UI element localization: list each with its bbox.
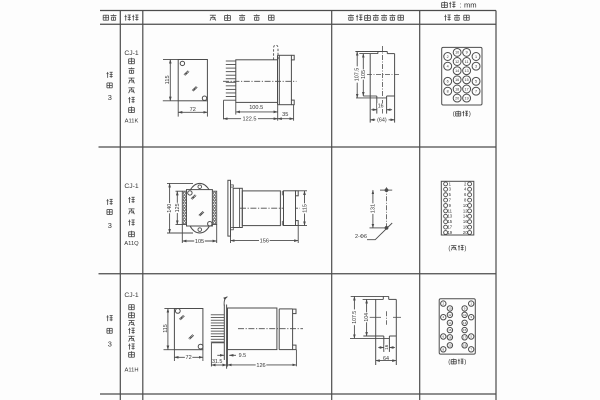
svg-text:18: 18: [448, 335, 452, 339]
svg-text:A11H: A11H: [124, 367, 138, 373]
svg-text:12: 12: [455, 60, 459, 64]
svg-text:mm: mm: [464, 1, 477, 10]
svg-text:115: 115: [165, 75, 171, 84]
svg-text:107.5: 107.5: [352, 311, 358, 324]
svg-text:15: 15: [463, 328, 467, 332]
svg-text:35: 35: [282, 112, 288, 118]
svg-text:10: 10: [448, 306, 452, 310]
svg-text:11: 11: [465, 60, 469, 64]
svg-text:19: 19: [465, 96, 469, 100]
svg-text:7: 7: [475, 89, 477, 93]
svg-text:14: 14: [455, 69, 459, 73]
svg-text:14: 14: [463, 214, 468, 219]
svg-text:1: 1: [475, 55, 477, 59]
svg-text:105: 105: [195, 239, 204, 245]
svg-text:16: 16: [384, 344, 389, 350]
svg-text:14: 14: [448, 321, 452, 325]
svg-text:105: 105: [361, 70, 367, 79]
svg-text:20: 20: [455, 96, 459, 100]
svg-text:10: 10: [463, 203, 468, 208]
svg-text:15: 15: [447, 219, 452, 224]
svg-text:16: 16: [455, 78, 459, 82]
svg-text:16: 16: [378, 103, 384, 109]
svg-text:CJ-1: CJ-1: [124, 50, 139, 57]
svg-text:140: 140: [167, 204, 173, 213]
svg-text:A11Q: A11Q: [124, 241, 139, 247]
svg-text:12: 12: [463, 208, 468, 213]
svg-text:3: 3: [475, 64, 477, 68]
svg-text:131: 131: [371, 204, 377, 213]
svg-text:122.5: 122.5: [243, 117, 257, 123]
svg-text:6: 6: [447, 80, 449, 84]
svg-text:CJ-1: CJ-1: [124, 292, 139, 299]
svg-text:18: 18: [455, 87, 459, 91]
svg-text:4: 4: [447, 64, 449, 68]
svg-text:72: 72: [190, 107, 196, 113]
svg-text:9: 9: [466, 51, 468, 55]
svg-text:11: 11: [448, 208, 453, 213]
svg-text:17: 17: [463, 335, 467, 339]
svg-text:104: 104: [364, 313, 370, 322]
svg-text:): ): [464, 359, 466, 366]
svg-text:15: 15: [465, 78, 469, 82]
svg-text:): ): [464, 245, 466, 252]
svg-text:31.5: 31.5: [212, 359, 223, 365]
svg-text:5: 5: [475, 80, 477, 84]
svg-text:8: 8: [447, 89, 449, 93]
svg-text:12: 12: [448, 313, 452, 317]
svg-text::: :: [459, 2, 461, 9]
svg-text:115: 115: [163, 324, 169, 333]
svg-text:CJ-1: CJ-1: [124, 183, 139, 190]
svg-text:19: 19: [463, 343, 467, 347]
svg-text:125: 125: [175, 203, 181, 212]
svg-text:A11K: A11K: [125, 118, 139, 124]
svg-text:13: 13: [465, 69, 469, 73]
svg-text:107.5: 107.5: [355, 68, 361, 82]
svg-text:17: 17: [465, 87, 469, 91]
svg-text:156: 156: [260, 239, 269, 245]
svg-text:126: 126: [256, 363, 265, 369]
svg-text:10: 10: [455, 51, 459, 55]
svg-text:16: 16: [463, 219, 468, 224]
svg-text:2: 2: [447, 55, 449, 59]
svg-text:19: 19: [447, 230, 452, 235]
svg-text:64: 64: [383, 356, 389, 362]
svg-text:13: 13: [463, 321, 467, 325]
svg-text:20: 20: [448, 343, 452, 347]
svg-text:3: 3: [108, 221, 112, 230]
svg-text:72: 72: [185, 355, 191, 361]
svg-text:17: 17: [447, 225, 452, 230]
svg-text:100.5: 100.5: [249, 105, 263, 111]
svg-text:3: 3: [108, 340, 112, 349]
svg-text:(64): (64): [377, 118, 387, 124]
svg-text:3: 3: [108, 93, 112, 102]
svg-text:20: 20: [463, 230, 468, 235]
svg-text:9.5: 9.5: [239, 353, 247, 359]
svg-text:18: 18: [463, 225, 468, 230]
svg-text:11: 11: [463, 313, 466, 317]
svg-text:2-Φ6: 2-Φ6: [355, 234, 367, 240]
svg-text:115: 115: [302, 204, 308, 213]
svg-text:16: 16: [448, 328, 452, 332]
svg-text:13: 13: [447, 214, 452, 219]
svg-text:): ): [469, 111, 471, 118]
